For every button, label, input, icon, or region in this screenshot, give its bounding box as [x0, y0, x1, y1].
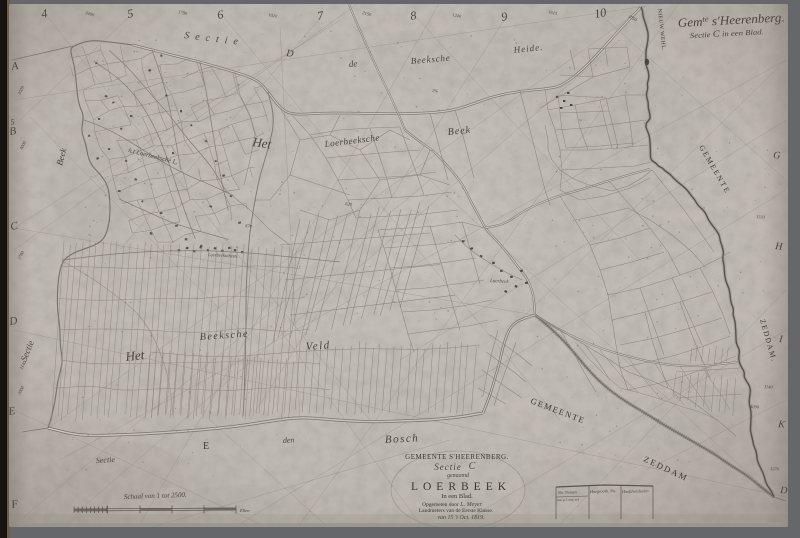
svg-text:Sectie: Sectie: [434, 462, 462, 472]
svg-text:o.a. p.l. enz. erf.: o.a. p.l. enz. erf.: [557, 498, 580, 502]
svg-text:1140: 1140: [764, 384, 774, 389]
svg-text:GEMEENTE S'HEERENBERG.: GEMEENTE S'HEERENBERG.: [405, 453, 509, 461]
svg-text:In een Blad.: In een Blad.: [441, 493, 473, 500]
svg-text:genaamd: genaamd: [447, 473, 470, 479]
svg-text:2%: 2%: [432, 88, 439, 94]
svg-text:1150: 1150: [756, 214, 766, 219]
svg-text:G: G: [773, 150, 781, 162]
svg-text:Hoofdverdeelen: Hoofdverdeelen: [621, 488, 649, 494]
svg-text:C: C: [469, 461, 476, 472]
svg-text:1270: 1270: [770, 466, 780, 472]
svg-text:No. Namen: No. Namen: [557, 489, 577, 495]
svg-text:LOERBEEK: LOERBEEK: [411, 481, 511, 493]
svg-text:van 15 't Oct. 1819.: van 15 't Oct. 1819.: [437, 515, 484, 521]
svg-text:Bosch: Bosch: [385, 432, 420, 446]
svg-text:E: E: [203, 441, 209, 452]
svg-text:Sectie: Sectie: [96, 455, 116, 465]
svg-text:den: den: [283, 435, 295, 445]
svg-text:Loerbeek: Loerbeek: [489, 279, 510, 285]
svg-text:Het: Het: [251, 134, 273, 152]
svg-text:Landmeters van de Eerste Klass: Landmeters van de Eerste Klasse.: [419, 508, 494, 514]
svg-text:Veld: Veld: [305, 339, 331, 353]
svg-text:4090: 4090: [750, 404, 760, 410]
svg-text:de: de: [348, 58, 357, 69]
svg-text:Ellen: Ellen: [239, 508, 250, 513]
svg-text:10: 10: [593, 5, 607, 21]
svg-text:Het: Het: [124, 347, 146, 364]
svg-text:Hoegrooth. No.: Hoegrooth. No.: [589, 488, 616, 494]
